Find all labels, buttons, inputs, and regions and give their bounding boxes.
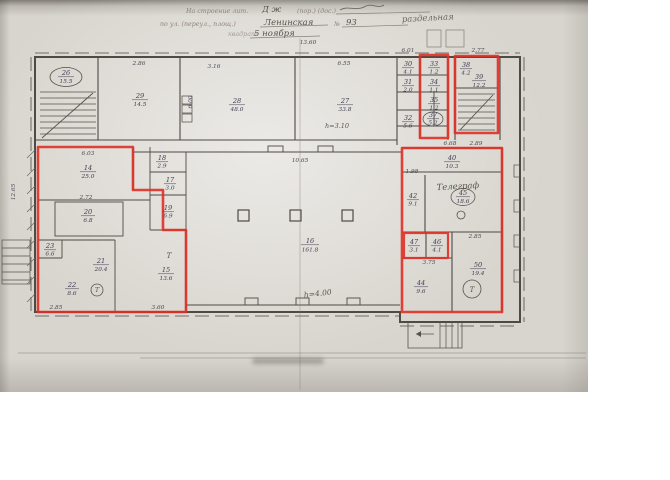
svg-text:2.0: 2.0 (402, 88, 413, 94)
form-label-por-dos: (пор.) (дос.) (297, 8, 337, 15)
svg-text:1.2: 1.2 (429, 70, 439, 76)
svg-text:6.6: 6.6 (45, 252, 55, 258)
room-label-37: 37 5.2 (427, 111, 439, 127)
svg-text:35: 35 (430, 96, 438, 104)
svg-text:16: 16 (306, 237, 314, 245)
stamp-smudge (252, 358, 324, 364)
room-label-39: 39 12.2 (472, 73, 486, 89)
svg-text:161.8: 161.8 (302, 248, 319, 254)
svg-text:3.1: 3.1 (409, 248, 418, 254)
room-label-14: 14 25.0 (80, 164, 96, 180)
dim-277: 2.77 (471, 48, 485, 54)
dim-285-right: 2.85 (468, 234, 482, 240)
room-label-29: 29 14.5 (132, 92, 148, 108)
form-box-1 (427, 30, 441, 47)
svg-text:18.6: 18.6 (457, 199, 470, 205)
svg-text:8.6: 8.6 (67, 291, 77, 297)
svg-text:19.4: 19.4 (472, 271, 485, 277)
svg-text:17: 17 (166, 176, 175, 184)
svg-text:10.3: 10.3 (446, 164, 459, 170)
dim-corridor-1065: 10.65 (292, 158, 309, 164)
dim-316: 3.16 (208, 64, 221, 70)
room-label-34: 34 1.1 (428, 78, 440, 94)
dim-655: 6.55 (338, 61, 351, 67)
handwritten-room27-height: h=3.10 (325, 122, 349, 130)
room-label-23: 23 6.6 (44, 242, 56, 258)
svg-text:5.6: 5.6 (403, 124, 413, 130)
room-label-40: 40 10.3 (444, 154, 460, 170)
room-label-33: 33 1.2 (428, 60, 440, 76)
svg-text:28: 28 (232, 97, 241, 105)
dim-600-vert: 6.00 (188, 95, 194, 108)
svg-text:33: 33 (430, 60, 438, 68)
form-box-2 (446, 30, 464, 47)
room-label-50: 50 19.4 (470, 261, 486, 277)
svg-text:27: 27 (340, 97, 350, 105)
svg-text:42: 42 (408, 192, 417, 200)
svg-text:38: 38 (462, 61, 470, 69)
hall-columns (238, 210, 353, 221)
room-label-42: 42 9.1 (407, 192, 419, 208)
room-label-31: 31 2.0 (402, 78, 414, 94)
svg-text:40: 40 (447, 154, 456, 162)
dim-top-width: 13.60 (300, 40, 317, 46)
form-label-number: № (333, 21, 340, 28)
room-label-35: 35 1.2 (428, 96, 440, 112)
form-label-street: по ул. (переул., площ.) (160, 21, 236, 28)
svg-text:30: 30 (404, 60, 412, 68)
svg-text:37: 37 (429, 111, 438, 119)
photo-of-plan-sheet: На строение лит. Д ж (пор.) (дос.) по ул… (0, 0, 588, 392)
svg-text:4.1: 4.1 (402, 70, 412, 76)
svg-text:2.9: 2.9 (156, 164, 167, 170)
exterior-left-steps (2, 240, 30, 284)
svg-text:21: 21 (96, 257, 105, 265)
svg-text:15: 15 (162, 266, 170, 274)
svg-text:46: 46 (432, 238, 441, 246)
svg-text:50: 50 (474, 261, 482, 269)
dim-360: 3.60 (152, 305, 165, 311)
room-label-16-hall: 16 161.8 (301, 237, 319, 254)
svg-text:22: 22 (67, 281, 76, 289)
svg-text:39: 39 (475, 73, 483, 81)
svg-text:4.2: 4.2 (460, 71, 471, 77)
handwritten-telegraph: Телеграф (436, 181, 479, 193)
svg-text:29: 29 (135, 92, 144, 100)
room-label-22: 22 8.6 (65, 281, 79, 297)
svg-text:14: 14 (84, 164, 92, 172)
svg-text:25.0: 25.0 (81, 174, 95, 180)
svg-text:6.8: 6.8 (83, 218, 93, 224)
svg-text:31: 31 (404, 78, 412, 86)
room-label-38: 38 4.2 (460, 61, 472, 77)
svg-text:32: 32 (404, 114, 412, 122)
red-marker-outlines (38, 55, 502, 312)
handwritten-t-mark-right: Т (470, 286, 476, 294)
dim-285-left: 2.85 (49, 305, 63, 311)
svg-text:6.9: 6.9 (163, 214, 173, 220)
room-label-17: 17 3.0 (164, 176, 176, 192)
left-staircase (40, 92, 96, 138)
svg-text:33.8: 33.8 (339, 107, 352, 113)
svg-text:20: 20 (83, 208, 92, 216)
room-label-28: 28 48.0 (229, 97, 245, 113)
room-label-44: 44 9.6 (414, 279, 428, 295)
room-label-19: 19 6.9 (162, 204, 174, 220)
room-label-27: 27 33.8 (337, 97, 353, 113)
svg-text:44: 44 (416, 279, 425, 287)
form-label-building: На строение лит. (185, 8, 248, 15)
room-label-46: 46 4.1 (431, 238, 443, 254)
dim-286: 2.86 (132, 61, 146, 67)
svg-text:48.0: 48.0 (230, 107, 244, 113)
room-label-21: 21 20.4 (93, 257, 109, 273)
svg-text:4.1: 4.1 (431, 248, 441, 254)
svg-text:19: 19 (164, 204, 172, 212)
svg-text:9.6: 9.6 (416, 289, 426, 295)
dim-375: 3.75 (423, 260, 436, 266)
form-label-kvadrat: квадрат (228, 31, 257, 38)
scanned-floorplan-page: На строение лит. Д ж (пор.) (дос.) по ул… (0, 0, 670, 480)
handwritten-t-loose: Т (166, 251, 172, 260)
room-label-32: 32 5.6 (402, 114, 414, 130)
dim-272: 2.72 (79, 195, 93, 201)
right-staircase (458, 94, 495, 130)
room-label-20: 20 6.8 (81, 208, 95, 224)
dim-668: 6.68 (444, 141, 457, 147)
handwritten-scribble (340, 5, 384, 10)
floor-plan-drawing: На строение лит. Д ж (пор.) (дос.) по ул… (0, 0, 588, 392)
svg-text:13.6: 13.6 (160, 276, 173, 282)
svg-text:5.2: 5.2 (428, 121, 438, 127)
svg-text:3.0: 3.0 (165, 186, 175, 192)
svg-text:12.2: 12.2 (473, 83, 486, 89)
svg-text:20.4: 20.4 (94, 267, 108, 273)
svg-text:34: 34 (430, 78, 438, 86)
svg-text:26: 26 (61, 69, 70, 77)
room-label-18: 18 2.9 (156, 154, 168, 170)
dim-198: 1.98 (406, 169, 419, 175)
svg-text:15.5: 15.5 (60, 79, 73, 85)
dim-289: 2.89 (469, 141, 483, 147)
room-label-30: 30 4.1 (402, 60, 414, 76)
entry-arrow-icon (416, 331, 421, 337)
svg-text:23: 23 (45, 242, 54, 250)
svg-text:47: 47 (409, 238, 419, 246)
svg-text:1.1: 1.1 (429, 88, 438, 94)
svg-text:18: 18 (158, 154, 166, 162)
handwritten-building-lit: Д ж (261, 5, 282, 15)
handwritten-side-note: раздельная (402, 12, 455, 25)
dim-1265-vert: 12.65 (11, 183, 17, 200)
handwritten-hall-height: h=4.00 (303, 288, 332, 300)
room-label-15: 15 13.6 (158, 266, 174, 282)
svg-text:9.1: 9.1 (408, 202, 417, 208)
dim-603: 6.03 (82, 151, 95, 157)
room-label-47: 47 3.1 (408, 238, 420, 254)
svg-text:14.5: 14.5 (134, 102, 147, 108)
dim-601: 6.01 (402, 48, 415, 54)
room-label-26: 26 15.5 (58, 69, 74, 85)
handwritten-t-mark-left: Т (95, 286, 100, 294)
